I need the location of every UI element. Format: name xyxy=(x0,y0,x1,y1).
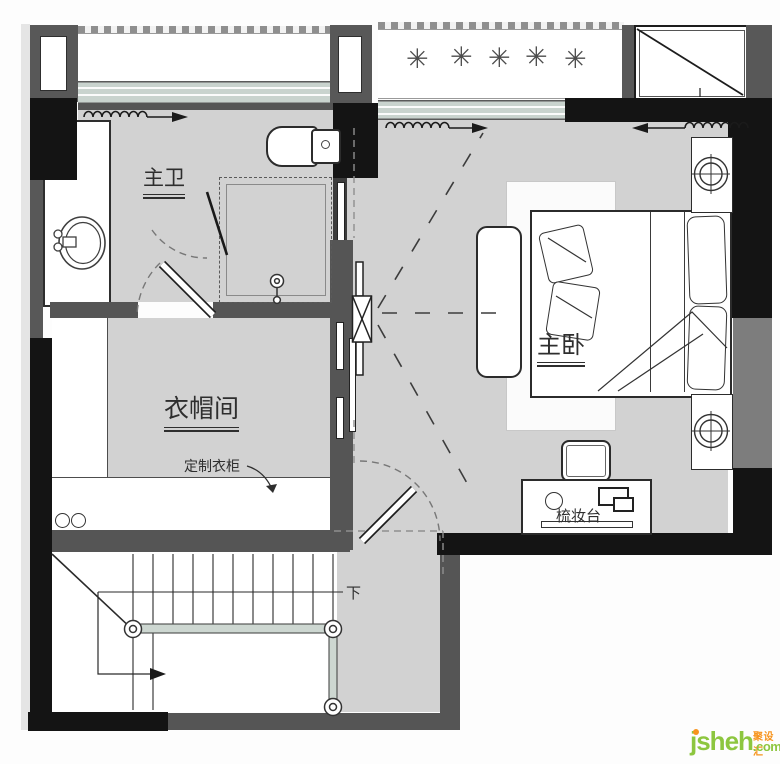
bench xyxy=(476,226,522,378)
jewelry-box-2 xyxy=(613,497,634,512)
sliding-panel-4 xyxy=(336,397,344,439)
annotation-custom-wardrobe: 定制衣柜 xyxy=(184,456,240,476)
floor-plan: ✳ ✳ ✳ ✳ ✳ xyxy=(0,0,780,764)
pier-window-1 xyxy=(40,36,67,91)
pier-top-right xyxy=(746,25,772,98)
wall-left-block-upper xyxy=(30,98,77,180)
page-edge-shade xyxy=(21,24,30,730)
shower-glass xyxy=(226,184,326,296)
annotation-dressing-table: 梳妆台 xyxy=(556,505,601,526)
wardrobe-bottom-cabinet xyxy=(52,477,330,531)
headboard-line-2 xyxy=(684,212,685,392)
window-sill-right xyxy=(378,100,565,120)
room-label-master-bath: 主卫 xyxy=(143,162,185,195)
radiator-unit-bottom xyxy=(691,394,733,470)
plant-icon: ✳ xyxy=(406,46,429,73)
window-hatch-left xyxy=(78,26,330,34)
headboard-line-1 xyxy=(650,212,651,392)
skylight-inner-frame xyxy=(639,30,745,97)
room-label-text: 主卧 xyxy=(537,325,585,363)
wardrobe-knob xyxy=(55,513,70,528)
pier-window-2 xyxy=(338,36,362,93)
room-label-cloakroom: 衣帽间 xyxy=(164,389,239,428)
room-label-text: 主卫 xyxy=(143,162,185,195)
stair-bottom-wall-black xyxy=(28,712,168,731)
bathroom-top-wall xyxy=(78,103,333,110)
bathroom-bottom-wall-right xyxy=(213,302,345,318)
brand-name: jsheh xyxy=(690,726,753,757)
landing-right-wall xyxy=(440,533,460,730)
bay-window-left xyxy=(78,34,330,81)
plant-icon: ✳ xyxy=(564,46,587,73)
pillow xyxy=(686,215,727,304)
wall-right-upper xyxy=(728,120,772,318)
brand-tld: .com xyxy=(753,739,780,754)
plant-icon: ✳ xyxy=(488,45,511,72)
skylight-box xyxy=(634,25,750,102)
window-sill-left xyxy=(78,81,330,104)
bedroom-bottom-wall xyxy=(437,533,772,555)
wall-left-thin xyxy=(30,180,43,340)
wall-top-right xyxy=(565,98,772,122)
stair-area xyxy=(52,552,337,712)
wall-right-mid xyxy=(733,318,772,468)
plant-icon: ✳ xyxy=(450,44,473,71)
bathroom-bottom-wall-left xyxy=(50,302,138,318)
dressing-stool xyxy=(561,440,611,482)
pillow xyxy=(687,305,728,390)
toilet-flush-button xyxy=(321,140,330,149)
annotation-stair-down: 下 xyxy=(346,582,361,603)
brand-watermark: jsheh 聚设汇 .com xyxy=(690,724,780,760)
cloakroom-bottom-wall xyxy=(52,530,350,552)
radiator-unit-top xyxy=(691,137,733,213)
planter-hatch xyxy=(378,22,624,30)
stair-bottom-wall-gray xyxy=(168,713,440,730)
sliding-panel-2 xyxy=(336,322,344,370)
wall-left-lower xyxy=(30,338,52,731)
room-label-text: 衣帽间 xyxy=(164,389,239,428)
room-label-master-bedroom: 主卧 xyxy=(537,325,585,363)
plant-icon: ✳ xyxy=(525,44,548,71)
brand-dot-icon xyxy=(693,729,699,735)
planter-box: ✳ ✳ ✳ ✳ ✳ xyxy=(378,30,624,99)
landing-floor xyxy=(337,533,440,712)
pier-mid-right xyxy=(622,25,634,98)
wardrobe-knob xyxy=(71,513,86,528)
sliding-panel-3 xyxy=(349,338,356,432)
